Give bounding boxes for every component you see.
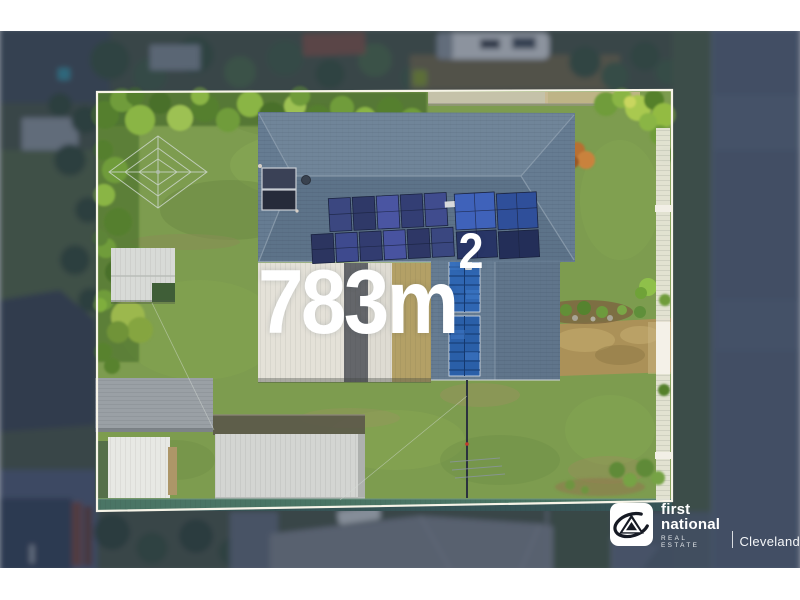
solar-hot-water-panel: [258, 164, 299, 213]
real-estate-listing-aerial-image: 783m2 first national REAL ESTATE Clevela…: [0, 0, 800, 600]
first-national-logo-icon: [610, 503, 653, 546]
driveway-gate: [656, 322, 670, 374]
area-value: 783m: [258, 252, 457, 353]
garden-shed-bottom-left: [95, 437, 177, 498]
garden-shed-left: [111, 248, 175, 304]
land-area-overlay: 783m2: [258, 257, 484, 348]
agency-logo: first national REAL ESTATE Cleveland: [610, 503, 800, 549]
bottom-margin: [0, 568, 800, 600]
logo-office-name: Cleveland: [739, 534, 800, 549]
logo-real-estate-tagline: REAL ESTATE: [661, 535, 725, 549]
area-superscript: 2: [458, 226, 483, 276]
large-shed-bottom: [213, 415, 365, 500]
roof-vent: [302, 176, 311, 185]
top-margin: [0, 0, 800, 31]
logo-wordmark: first national REAL ESTATE: [661, 503, 725, 549]
logo-divider: [732, 531, 733, 548]
house-main-roof: [258, 112, 575, 269]
side-fence-white: [655, 128, 671, 500]
carport: [95, 378, 213, 432]
logo-brand-national: national: [661, 518, 725, 533]
